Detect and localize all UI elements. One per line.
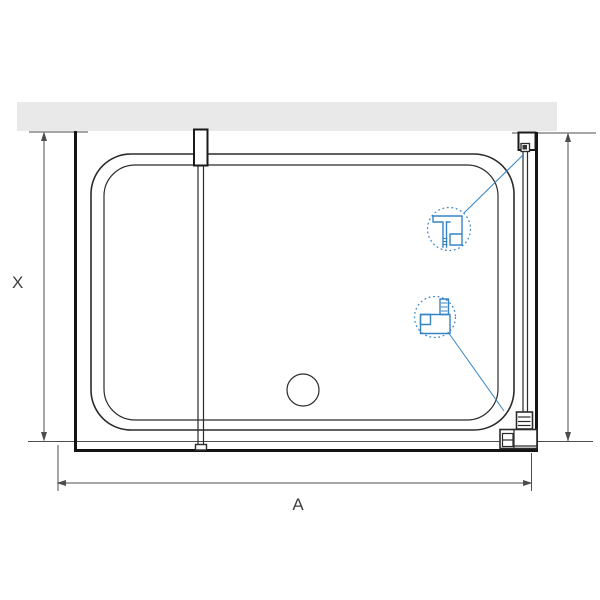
top-wall-profile — [519, 133, 536, 152]
detail-callout-bottom-profile — [415, 297, 505, 412]
bottom-wall-profile — [500, 412, 537, 449]
dimension-right — [565, 133, 571, 442]
shower-enclosure-top-view: X A — [0, 0, 600, 600]
callout-leader-line — [448, 332, 504, 411]
arrow-up-icon — [41, 132, 47, 142]
fixed-side-panel — [500, 133, 537, 449]
bottom-profile-section-icon — [421, 299, 451, 334]
diagram-canvas: X A — [0, 0, 600, 600]
top-profile-section-icon — [433, 216, 462, 247]
walk-in-glass-panel — [194, 130, 208, 451]
a-dimension-label: A — [292, 495, 304, 514]
glass-panel-wall-bracket — [194, 130, 208, 166]
callout-circle — [428, 208, 471, 251]
x-dimension-label: X — [12, 273, 23, 292]
wall — [17, 102, 557, 131]
dimension-x: X — [12, 132, 47, 442]
arrow-down-icon — [565, 432, 571, 442]
dimension-a: A — [57, 445, 533, 514]
arrow-up-icon — [565, 133, 571, 143]
detail-callout-top-profile — [428, 155, 524, 251]
arrow-down-icon — [41, 432, 47, 442]
drain — [287, 374, 319, 406]
shower-tray — [91, 154, 514, 430]
glass-panel-foot — [196, 445, 207, 451]
